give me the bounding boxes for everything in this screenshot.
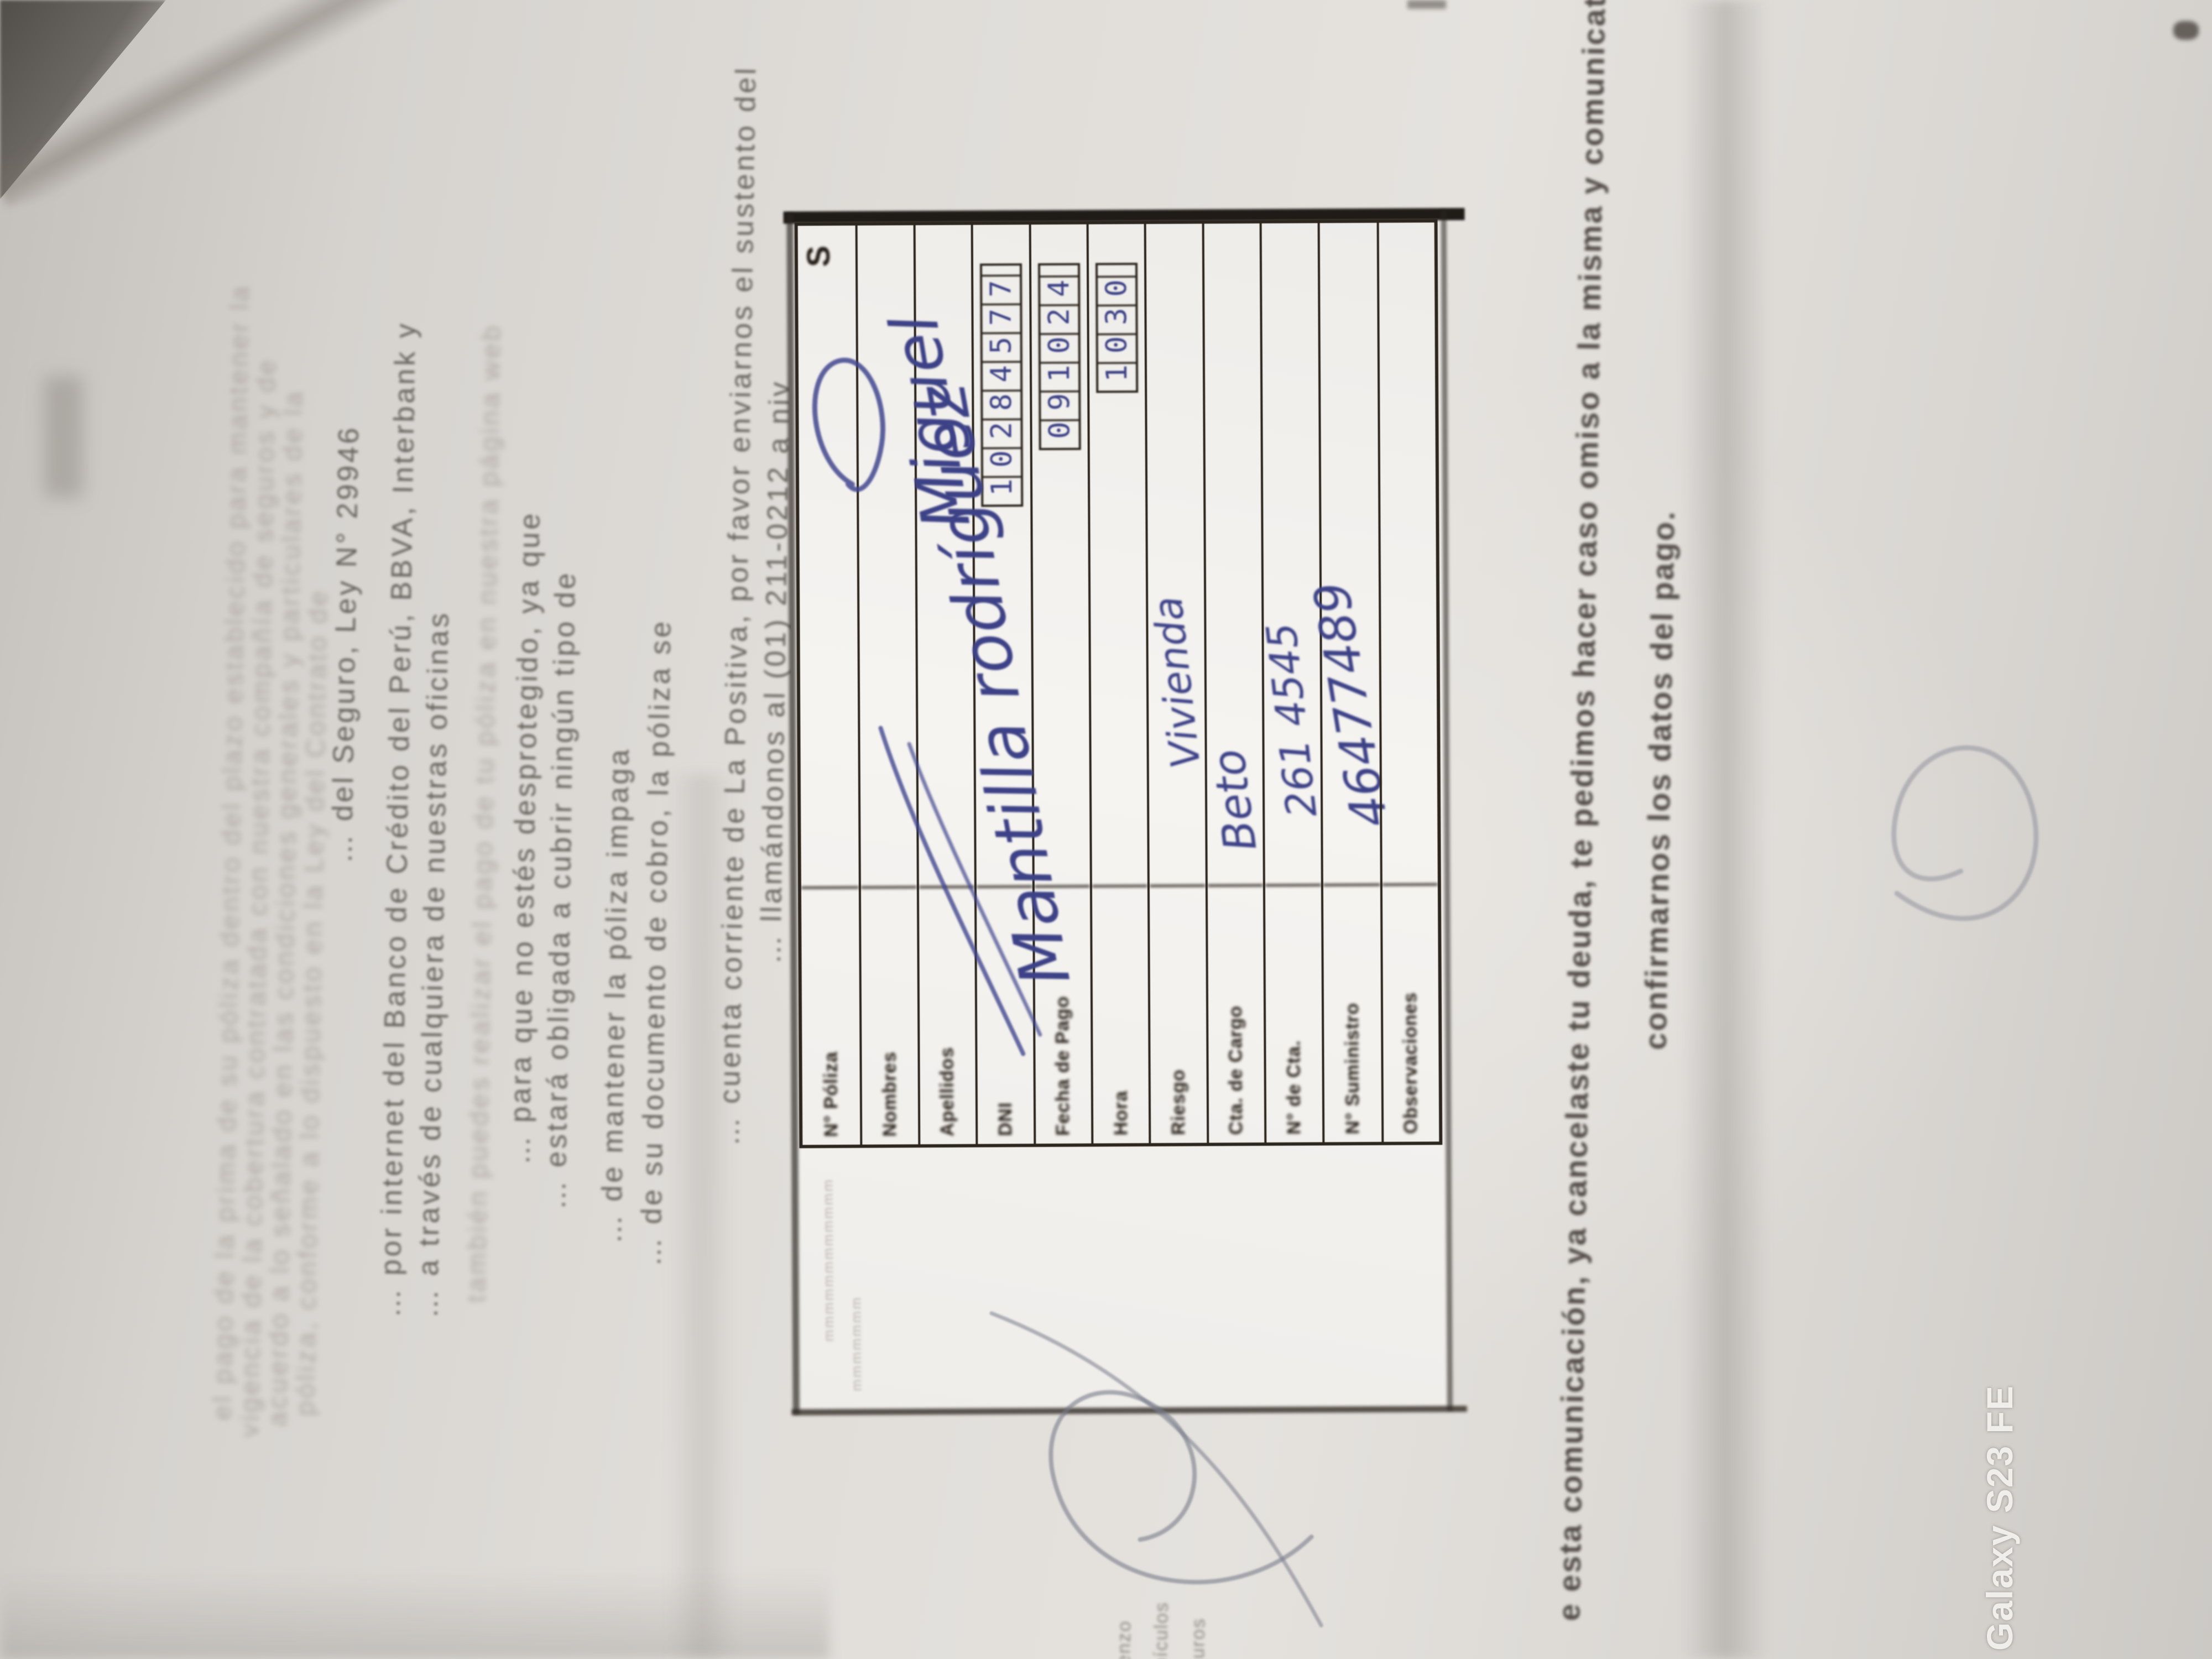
letter-line: … de su documento de cobro, la póliza se [634,619,677,1267]
date-digit-boxes: 091024 [1038,263,1081,450]
slip-row-label: N° Póliza [801,886,860,1145]
slip-edge [1441,210,1452,1410]
photo-of-document: el pago de la prima de su póliza dentro … [0,0,2212,1659]
letter-line: también puedes realizar el pago de tu pó… [461,323,507,1303]
ink-speck [1407,0,1446,9]
slip-row: Riesgo Vivienda [1144,224,1207,1144]
letter-line: … del Seguro, Ley N° 29946 [326,425,366,863]
slip-faint-print: mmmmmmmmmmmm [820,1178,838,1342]
time-digit-boxes: 1030 [1095,263,1138,393]
signature-block-line: de Vehículos [1149,1601,1172,1659]
letter-line: … para que no estés desprotegido, ya que [503,510,547,1165]
slip-row-value: S [798,226,859,887]
slip-row: N° Suministro 46477489 [1317,223,1381,1142]
slip-faint-print: mmmmmmm [848,1296,865,1391]
slip-row: Cta. de Cargo Beto [1202,223,1264,1143]
slip-row-value: 261 4545 [1262,223,1321,884]
currency-mark: S [800,246,837,267]
footer-bold-line: confirmarnos los datos del pago. [1637,510,1682,1050]
signature-loop [1049,1391,1314,1584]
handwritten-value: Vivienda [1144,594,1209,771]
slip-row-label: Apellidos [919,886,976,1144]
slip-row-value: 1030 [1089,224,1148,885]
signature-block-line: Matienzo [1113,1620,1135,1659]
slip-row: Observaciones [1376,222,1439,1142]
slip-row-label: N° de Cta. [1265,884,1322,1142]
pencil-loop-doodle [1892,747,2037,920]
slip-row-value: 46477489 [1319,223,1380,884]
signature-block-line: Seguros [1187,1618,1209,1659]
slip-row-value: Vivienda [1146,224,1206,885]
slip-row: Hora 1030 [1087,224,1149,1144]
letter-line: … de mantener la póliza impaga [595,747,636,1244]
slip-row-label: Observaciones [1382,884,1439,1142]
slip-row: N° de Cta. 261 4545 [1260,223,1322,1142]
letter-line: … a través de cualquiera de nuestras ofi… [411,610,456,1318]
slip-row-label: Cta. de Cargo [1208,884,1265,1142]
letter-line: … cuenta corriente de La Positiva, por f… [713,65,763,1146]
slip-row: N° Póliza S [798,226,860,1145]
slip-row: Fecha de Pago 091024 [1029,225,1091,1144]
slip-row-label: Hora [1092,885,1149,1143]
slip-row-value: Beto [1204,223,1263,885]
slip-row-label: N° Suministro [1323,884,1381,1142]
slip-row-label: Riesgo [1150,885,1207,1143]
letter-line: … estará obligada a cubrir ningún tipo d… [539,570,582,1210]
slip-row-value [1379,222,1438,884]
handwritten-value: Beto [1203,747,1267,854]
camera-watermark: Galaxy S23 FE [1979,1385,2021,1651]
slip-edge [792,1406,1467,1415]
slip-row-label: Nombres [861,886,918,1145]
footer-bold-line: e esta comunicación, ya cancelaste tu de… [1551,0,1615,1621]
rotated-letter-page: el pago de la prima de su póliza dentro … [10,0,2212,1659]
